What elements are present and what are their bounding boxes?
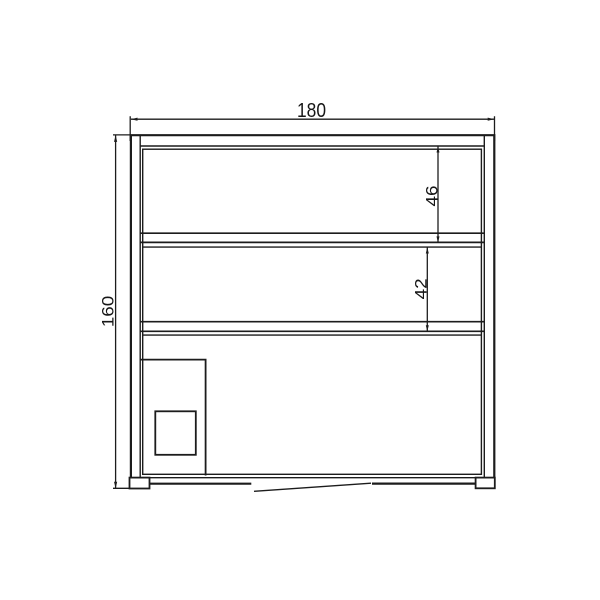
svg-text:180: 180 <box>297 100 326 122</box>
svg-text:42: 42 <box>413 278 431 299</box>
svg-text:46: 46 <box>424 186 442 207</box>
svg-text:160: 160 <box>98 296 117 328</box>
